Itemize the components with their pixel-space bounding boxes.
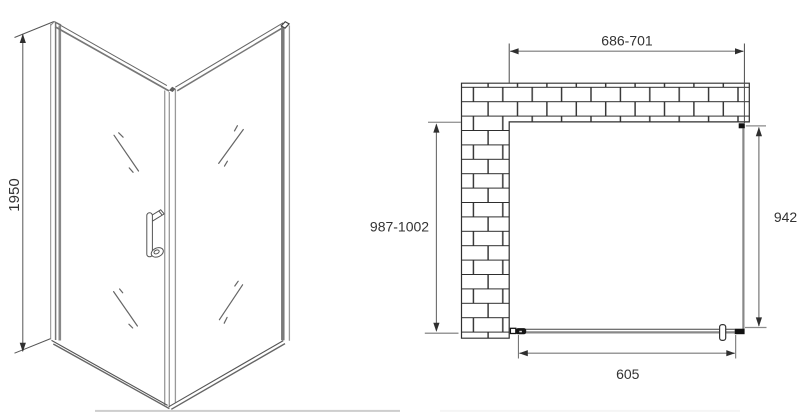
svg-text:1950: 1950: [6, 178, 23, 211]
svg-text:942: 942: [774, 209, 798, 225]
svg-text:686-701: 686-701: [601, 33, 653, 49]
svg-text:605: 605: [616, 366, 640, 382]
svg-text:987-1002: 987-1002: [370, 219, 429, 235]
